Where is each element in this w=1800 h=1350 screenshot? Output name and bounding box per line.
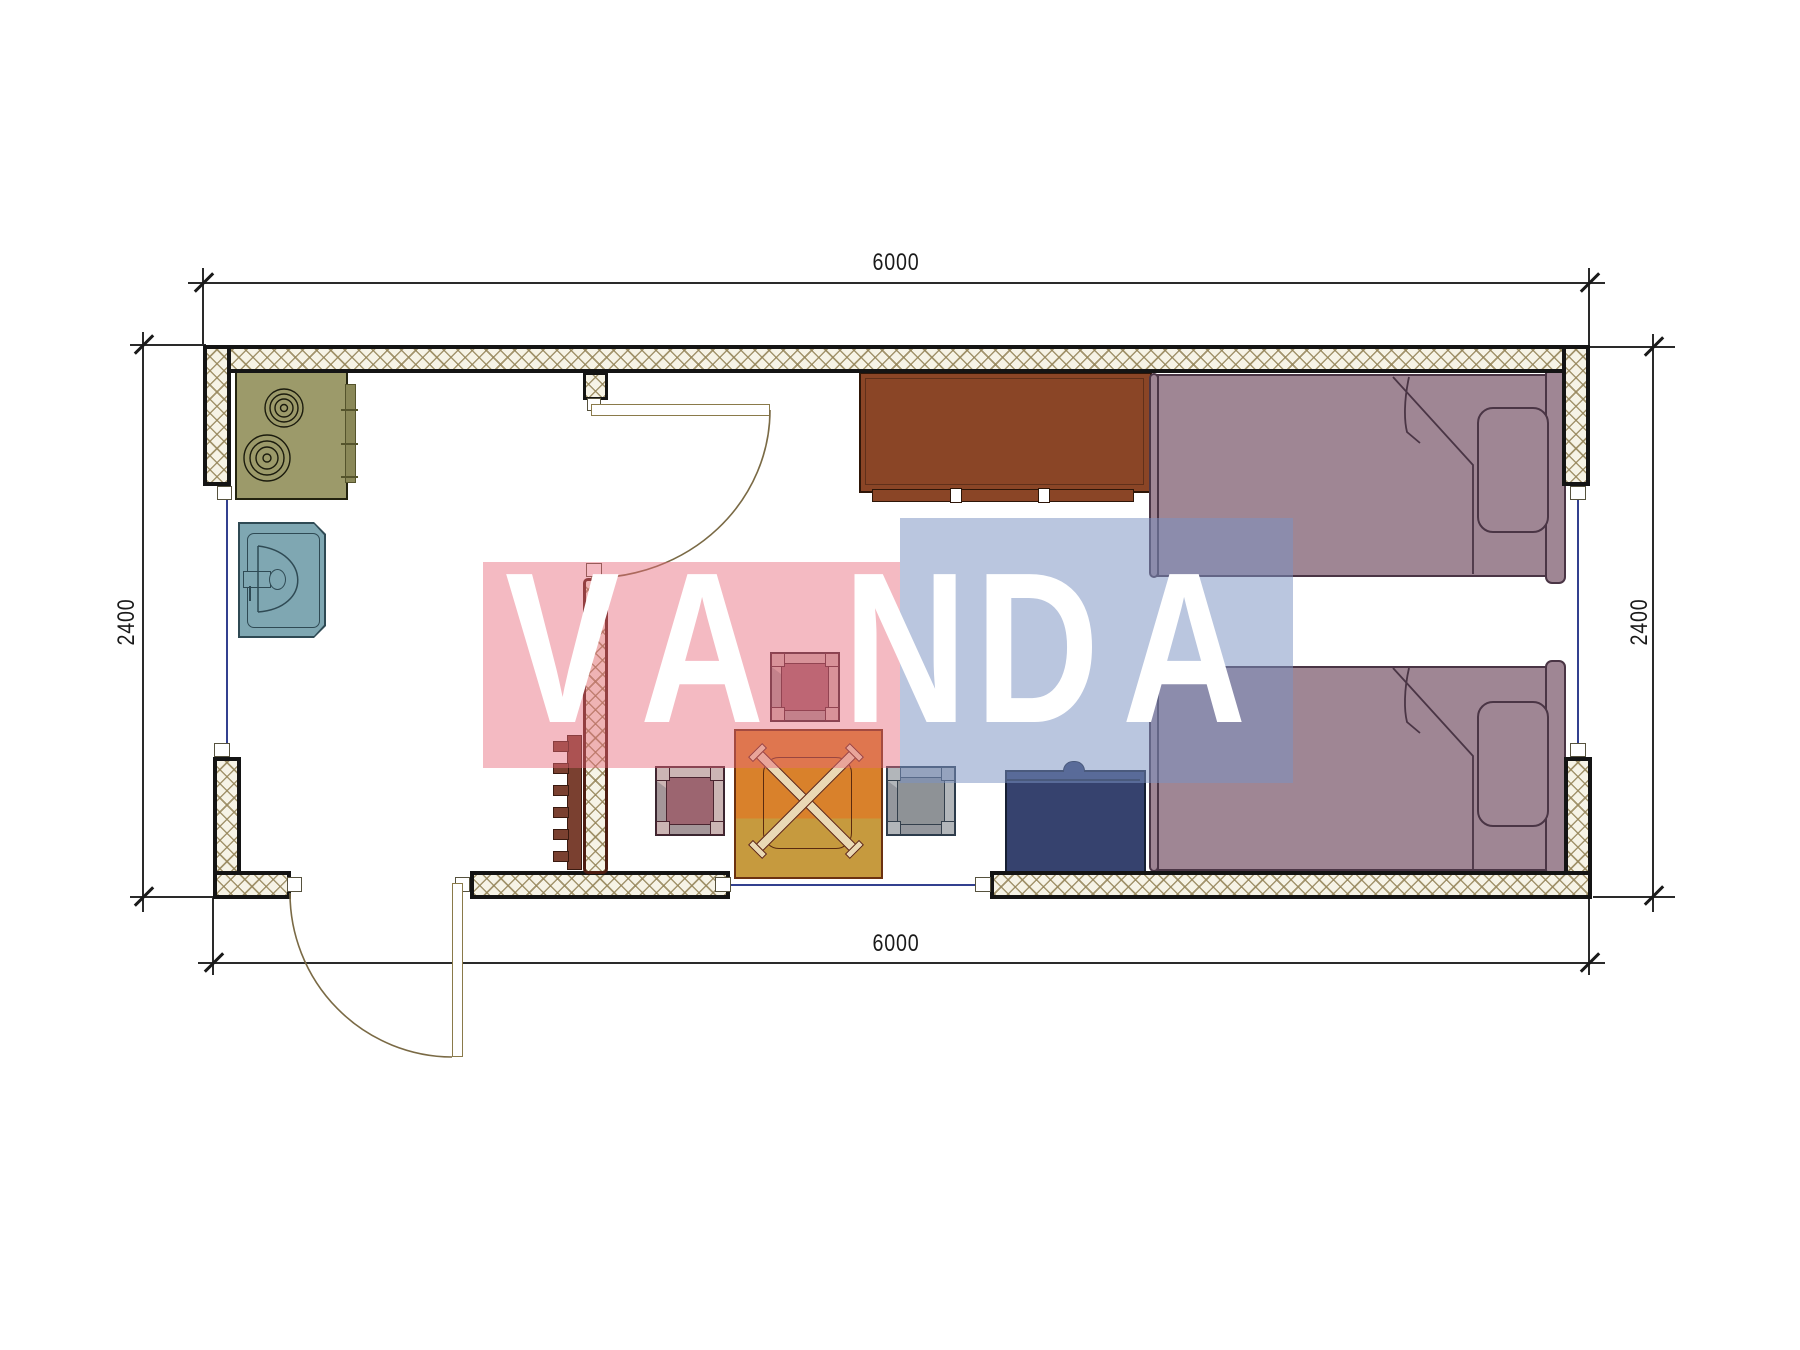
entry-door-arc: [290, 893, 452, 1057]
watermark-letter: A: [640, 540, 764, 755]
stove-burners: [244, 389, 303, 481]
watermark-letter: N: [843, 540, 967, 755]
sink-basin: [258, 546, 298, 612]
floor-plan: 6000 6000 2400 2400: [0, 0, 1800, 1350]
watermark-letter: V: [505, 540, 620, 755]
watermark-letter: D: [975, 540, 1099, 755]
watermark-letter: A: [1122, 540, 1246, 755]
blanket-folds: [1393, 377, 1473, 869]
